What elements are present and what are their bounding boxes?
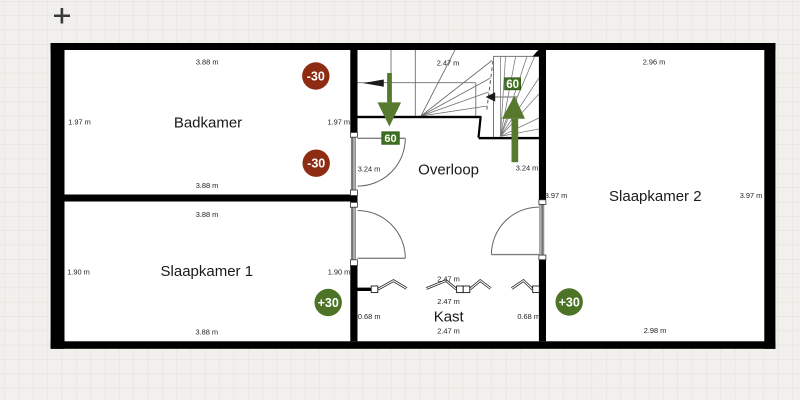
svg-text:3.97 m: 3.97 m (545, 191, 568, 200)
svg-text:+30: +30 (318, 296, 339, 310)
svg-text:2.47 m: 2.47 m (437, 274, 460, 283)
svg-text:+30: +30 (559, 296, 580, 310)
svg-text:60: 60 (384, 133, 396, 145)
svg-text:3.24 m: 3.24 m (358, 164, 381, 173)
svg-text:3.88 m: 3.88 m (196, 181, 219, 190)
svg-text:3.88 m: 3.88 m (195, 327, 218, 336)
svg-text:3.88 m: 3.88 m (196, 210, 219, 219)
svg-text:1.97 m: 1.97 m (327, 117, 350, 126)
svg-text:2.96 m: 2.96 m (643, 57, 666, 66)
svg-text:2.47 m: 2.47 m (437, 58, 460, 67)
svg-text:60: 60 (506, 79, 519, 91)
svg-text:0.68 m: 0.68 m (358, 312, 381, 321)
svg-text:Slaapkamer 1: Slaapkamer 1 (161, 263, 254, 280)
svg-text:0.68 m: 0.68 m (517, 312, 540, 321)
svg-text:Overloop: Overloop (418, 162, 479, 179)
svg-text:1.90 m: 1.90 m (328, 268, 351, 277)
svg-text:2.47 m: 2.47 m (437, 297, 460, 306)
svg-text:1.90 m: 1.90 m (67, 268, 90, 277)
svg-text:2.47 m: 2.47 m (437, 326, 460, 335)
svg-text:Badkamer: Badkamer (174, 115, 242, 132)
svg-text:Kast: Kast (434, 308, 465, 325)
svg-text:-30: -30 (307, 70, 325, 84)
svg-text:Slaapkamer 2: Slaapkamer 2 (609, 188, 702, 205)
svg-text:2.98 m: 2.98 m (644, 326, 667, 335)
svg-text:1.97 m: 1.97 m (68, 117, 91, 126)
svg-text:-30: -30 (307, 157, 325, 171)
svg-text:3.24 m: 3.24 m (516, 164, 539, 173)
svg-text:3.97 m: 3.97 m (740, 191, 763, 200)
svg-text:3.88 m: 3.88 m (196, 57, 219, 66)
